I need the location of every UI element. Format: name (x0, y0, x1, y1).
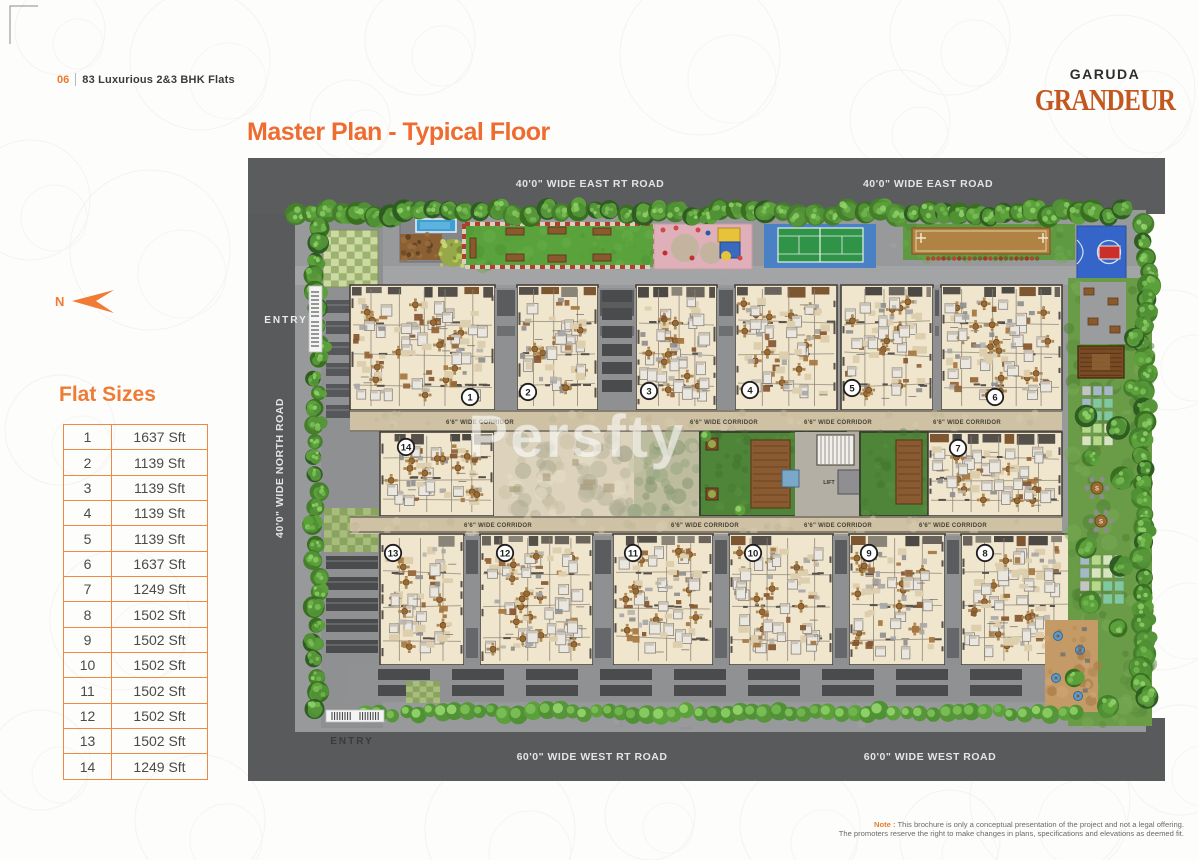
svg-text:60'0" WIDE WEST ROAD: 60'0" WIDE WEST ROAD (864, 751, 996, 763)
svg-text:S: S (1095, 487, 1099, 493)
svg-text:S: S (1099, 520, 1103, 526)
svg-text:4: 4 (747, 385, 753, 396)
svg-text:10: 10 (748, 548, 759, 559)
svg-text:7: 7 (955, 443, 960, 454)
svg-text:5: 5 (849, 383, 855, 394)
svg-text:40'0" WIDE EAST ROAD: 40'0" WIDE EAST ROAD (863, 178, 993, 190)
svg-text:60'0" WIDE WEST RT ROAD: 60'0" WIDE WEST RT ROAD (517, 751, 668, 763)
svg-text:LIFT: LIFT (823, 480, 835, 486)
svg-text:6'6" WIDE CORRIDOR: 6'6" WIDE CORRIDOR (933, 420, 1001, 426)
svg-text:12: 12 (500, 548, 511, 559)
svg-text:40'0" WIDE EAST RT ROAD: 40'0" WIDE EAST RT ROAD (516, 178, 665, 190)
svg-text:6'6" WIDE CORRIDOR: 6'6" WIDE CORRIDOR (690, 420, 758, 426)
svg-text:14: 14 (401, 442, 412, 453)
svg-text:6: 6 (992, 392, 997, 403)
svg-text:3: 3 (646, 386, 651, 397)
svg-text:ENTRY: ENTRY (330, 736, 374, 747)
svg-text:6'6" WIDE CORRIDOR: 6'6" WIDE CORRIDOR (919, 523, 987, 529)
svg-text:6'6" WIDE CORRIDOR: 6'6" WIDE CORRIDOR (464, 523, 532, 529)
svg-text:6'6" WIDE CORRIDOR: 6'6" WIDE CORRIDOR (671, 523, 739, 529)
svg-text:9: 9 (866, 548, 871, 559)
svg-text:6'6" WIDE CORRIDOR: 6'6" WIDE CORRIDOR (804, 420, 872, 426)
svg-text:40'0" WIDE NORTH ROAD: 40'0" WIDE NORTH ROAD (274, 398, 286, 538)
svg-text:8: 8 (982, 548, 987, 559)
svg-text:6'6" WIDE CORRIDOR: 6'6" WIDE CORRIDOR (804, 523, 872, 529)
svg-text:13: 13 (388, 548, 399, 559)
svg-text:2: 2 (525, 387, 530, 398)
svg-text:11: 11 (628, 548, 639, 559)
svg-text:ENTRY: ENTRY (264, 315, 308, 326)
svg-text:N: N (55, 294, 64, 309)
